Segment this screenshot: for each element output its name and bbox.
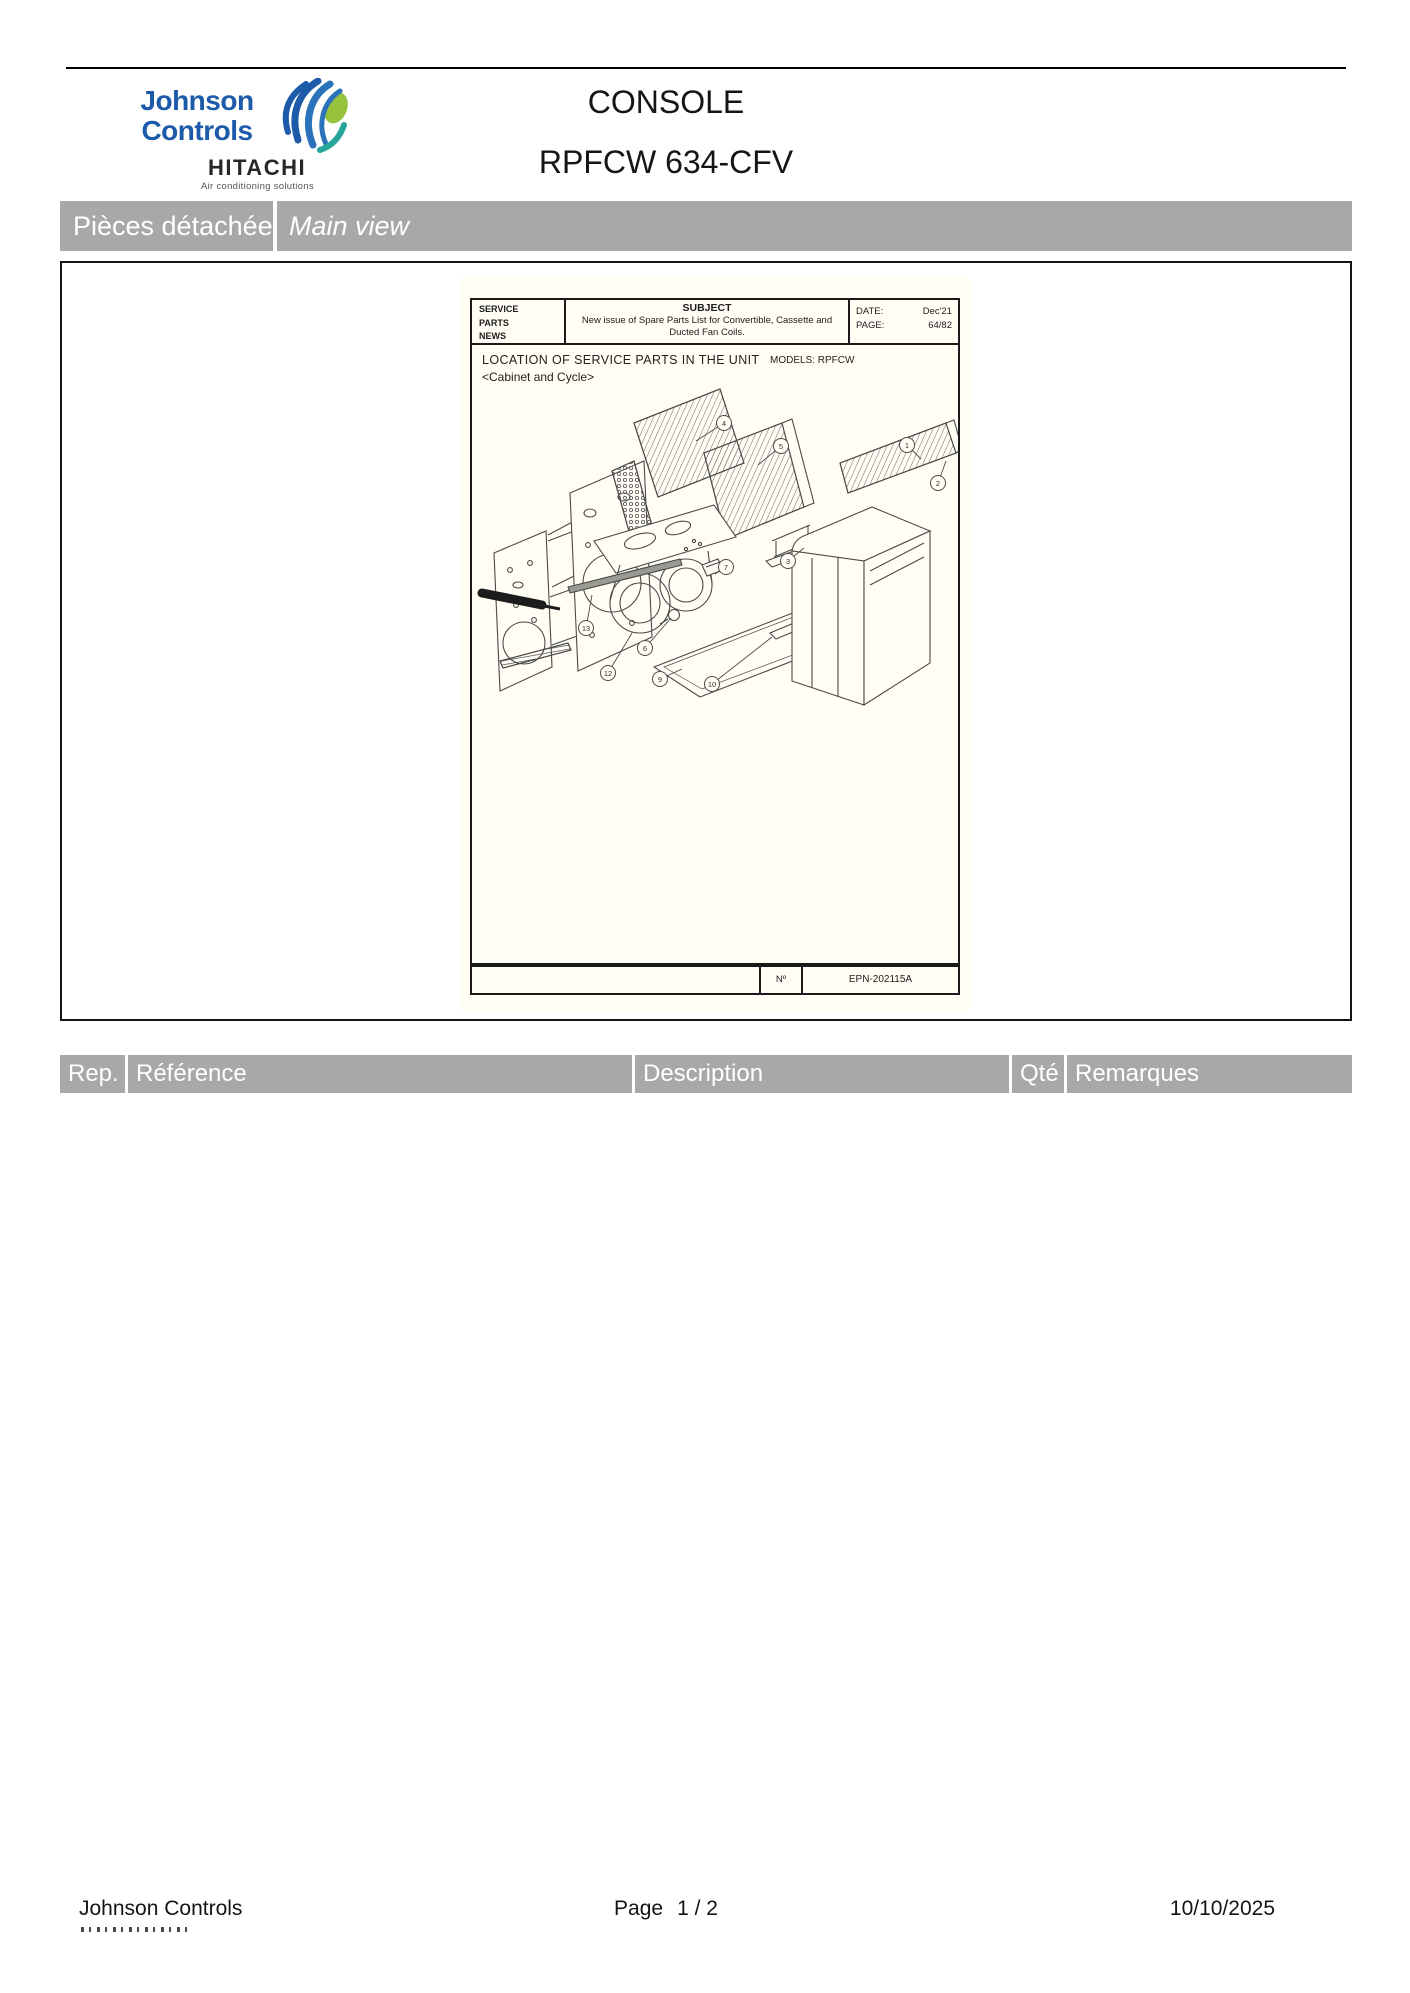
service-parts-news-sheet: SERVICE PARTS NEWS SUBJECT New issue of … xyxy=(460,278,970,1010)
column-header-reference: Référence xyxy=(128,1055,632,1093)
footer-page-value: 1 / 2 xyxy=(677,1897,718,1920)
section-bar-left-label: Pièces détachées xyxy=(60,201,273,251)
doc-number-label: Nº xyxy=(761,967,803,993)
doc-number-value: EPN-202115A xyxy=(803,967,958,993)
svg-text:13: 13 xyxy=(582,624,590,633)
section-bar-view-label: Main view xyxy=(277,201,1352,251)
exploded-view-diagram: 45123713126910 xyxy=(472,345,958,961)
logo-line2: Controls xyxy=(124,116,270,146)
doc-subject-body: New issue of Spare Parts List for Conver… xyxy=(578,315,836,339)
column-header-rep: Rep. xyxy=(60,1055,125,1093)
footer-date: 10/10/2025 xyxy=(1170,1897,1275,1921)
johnson-controls-swirl-icon xyxy=(276,78,356,156)
johnson-controls-logo: Johnson Controls xyxy=(124,86,356,156)
johnson-controls-wordmark: Johnson Controls xyxy=(124,86,270,146)
footer-company: Johnson Controls xyxy=(79,1897,242,1921)
svg-text:5: 5 xyxy=(779,442,783,451)
column-header-qty: Qté xyxy=(1012,1055,1064,1093)
main-view-panel: SERVICE PARTS NEWS SUBJECT New issue of … xyxy=(60,261,1352,1021)
svg-text:1: 1 xyxy=(905,441,909,450)
logo-line1: Johnson xyxy=(124,86,270,116)
footer-page-label: Page xyxy=(614,1897,663,1920)
doc-subject-cell: SUBJECT New issue of Spare Parts List fo… xyxy=(566,300,850,343)
doc-date-label: DATE: xyxy=(856,305,883,319)
svg-text:7: 7 xyxy=(724,563,728,572)
column-header-description: Description xyxy=(635,1055,1009,1093)
page-title: CONSOLE xyxy=(588,84,744,121)
callout-2: 2 xyxy=(931,461,947,491)
header-divider-rule xyxy=(66,67,1346,69)
model-subtitle: RPFCW 634-CFV xyxy=(539,144,793,181)
svg-text:3: 3 xyxy=(786,557,790,566)
doc-page-value: 64/82 xyxy=(928,319,952,333)
column-header-remarks: Remarques xyxy=(1067,1055,1352,1093)
footer-page-indicator: Page1 / 2 xyxy=(614,1897,718,1921)
svg-text:10: 10 xyxy=(708,680,716,689)
doc-masthead-label: SERVICE PARTS NEWS xyxy=(472,300,566,343)
doc-date-page-cell: DATE: Dec'21 PAGE: 64/82 xyxy=(850,300,958,343)
doc-number-empty-cell xyxy=(472,967,761,993)
hitachi-wordmark: HITACHI xyxy=(208,155,306,181)
doc-diagram-frame: LOCATION OF SERVICE PARTS IN THE UNIT <C… xyxy=(470,345,960,965)
svg-text:6: 6 xyxy=(643,644,647,653)
svg-text:9: 9 xyxy=(658,675,662,684)
svg-text:2: 2 xyxy=(936,479,940,488)
doc-subject-title: SUBJECT xyxy=(578,302,836,315)
doc-masthead: SERVICE PARTS NEWS SUBJECT New issue of … xyxy=(470,298,960,345)
hitachi-tagline: Air conditioning solutions xyxy=(201,181,314,192)
svg-text:4: 4 xyxy=(722,419,726,428)
doc-page-label: PAGE: xyxy=(856,319,884,333)
section-bar: Pièces détachées Main view xyxy=(60,201,1352,251)
doc-number-strip: Nº EPN-202115A xyxy=(470,965,960,995)
svg-text:12: 12 xyxy=(604,669,612,678)
parts-table-header: Rep. Référence Description Qté Remarques xyxy=(60,1055,1352,1093)
doc-date-value: Dec'21 xyxy=(923,305,952,319)
footer-clipped-line xyxy=(81,1927,193,1932)
catalog-page: Johnson Controls HITACHI Air conditionin… xyxy=(0,0,1410,1993)
